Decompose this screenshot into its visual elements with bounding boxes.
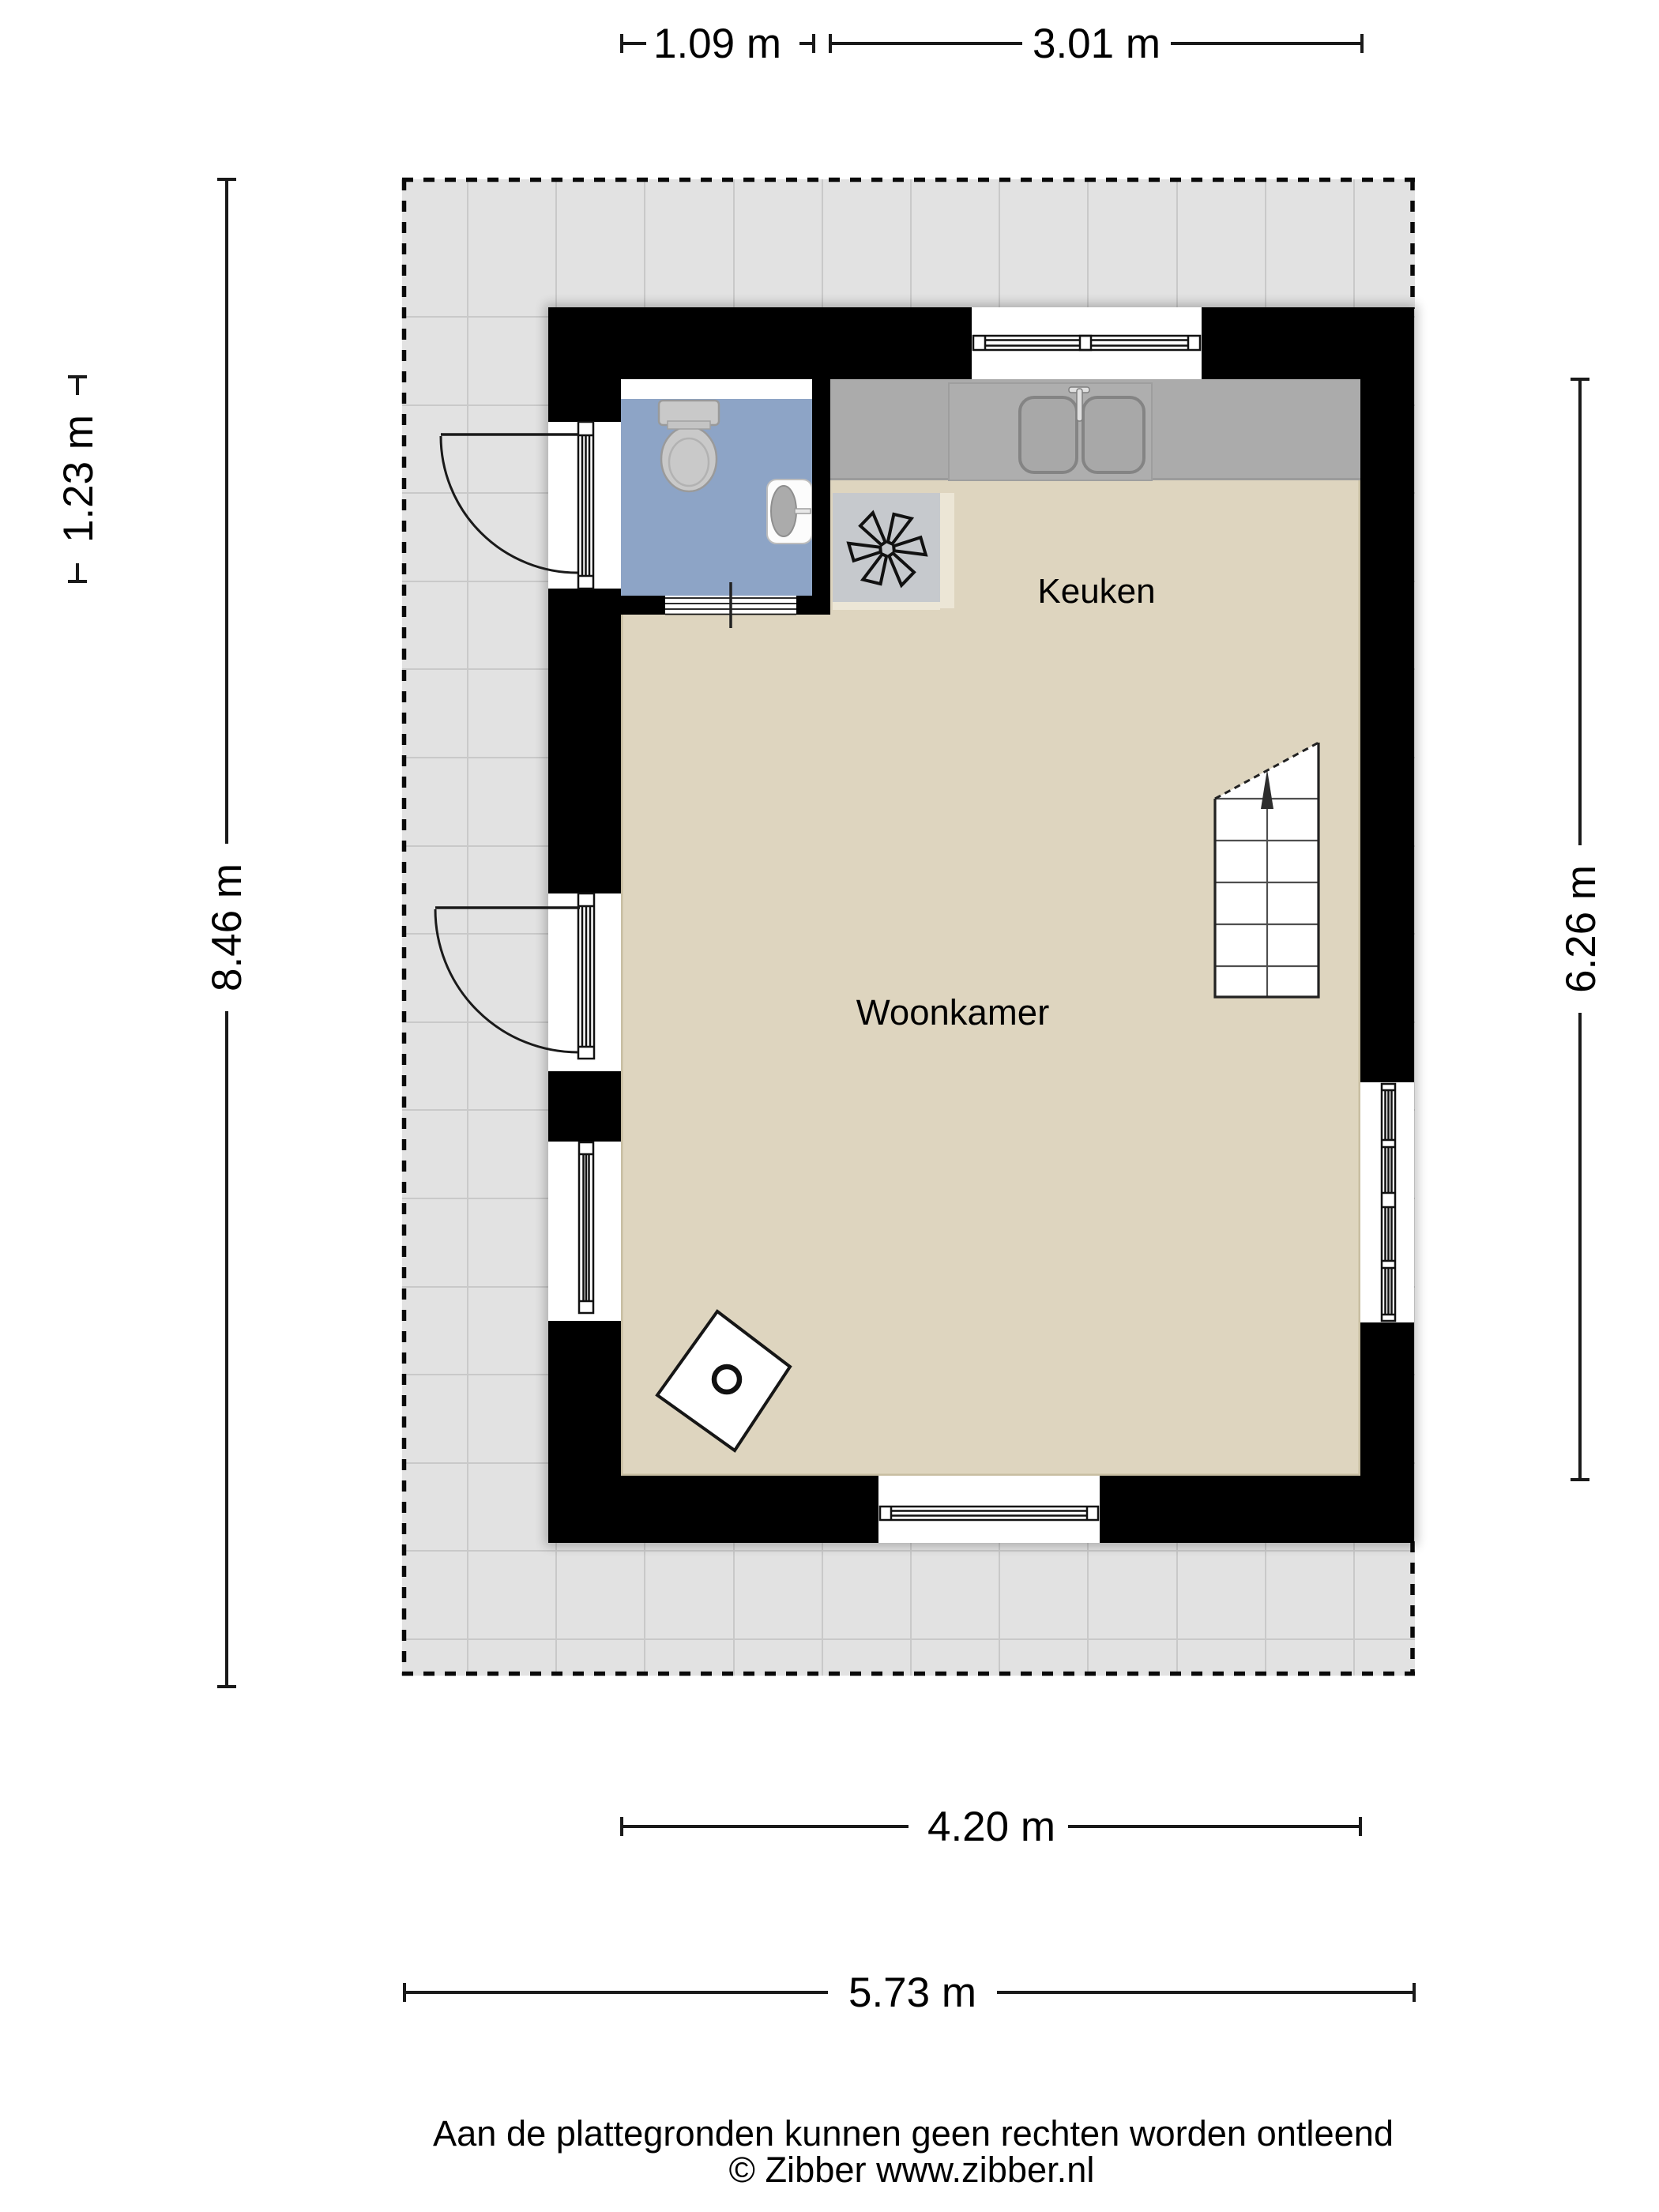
svg-text:5.73 m: 5.73 m [848,1969,976,2016]
svg-text:Keuken: Keuken [1037,572,1155,611]
svg-text:Woonkamer: Woonkamer [856,992,1049,1033]
svg-text:4.20 m: 4.20 m [927,1804,1055,1850]
svg-text:6.26 m: 6.26 m [1558,865,1604,993]
svg-text:© Zibber www.zibber.nl: © Zibber www.zibber.nl [729,2150,1095,2190]
svg-text:1.23 m: 1.23 m [55,415,102,543]
svg-text:Aan de plattegronden kunnen ge: Aan de plattegronden kunnen geen rechten… [433,2113,1394,2154]
svg-text:3.01 m: 3.01 m [1033,21,1161,67]
svg-text:1.09 m: 1.09 m [653,21,781,67]
svg-text:8.46 m: 8.46 m [204,863,250,991]
